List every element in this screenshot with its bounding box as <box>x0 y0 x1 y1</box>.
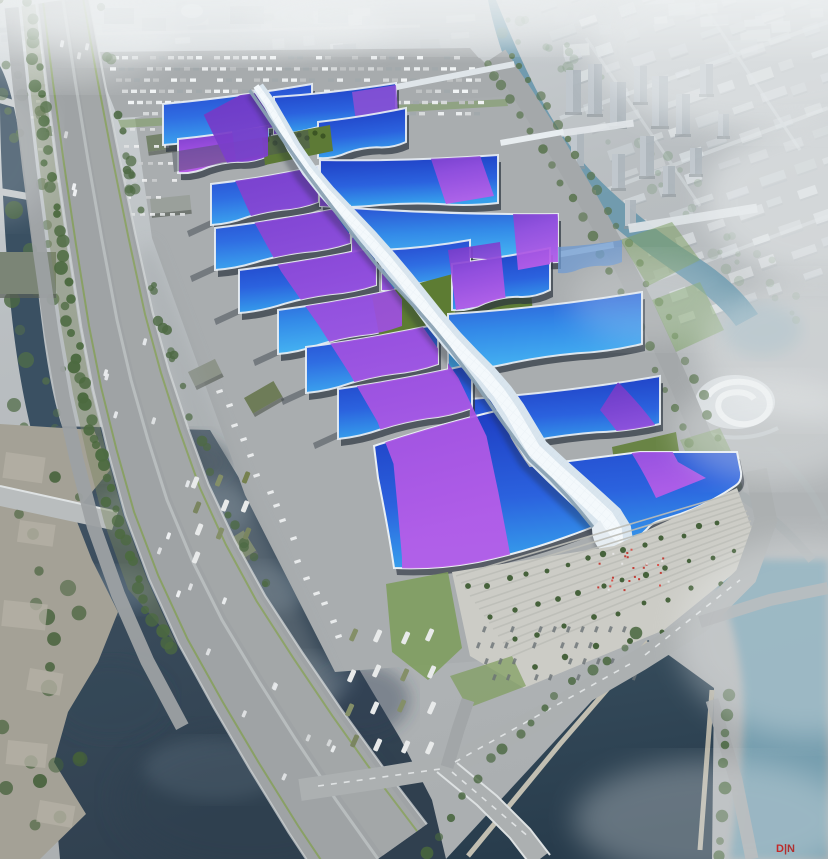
svg-text:D|N: D|N <box>776 843 795 855</box>
